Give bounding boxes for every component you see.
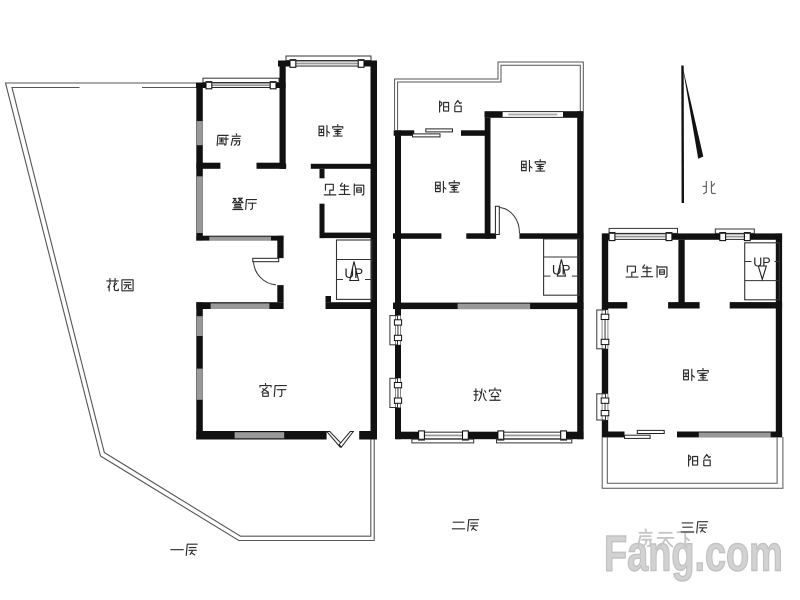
- svg-text:UP: UP: [552, 263, 571, 278]
- svg-text:UP: UP: [753, 256, 770, 270]
- svg-text:Fang.com: Fang.com: [604, 526, 783, 581]
- svg-text:UP: UP: [344, 266, 363, 281]
